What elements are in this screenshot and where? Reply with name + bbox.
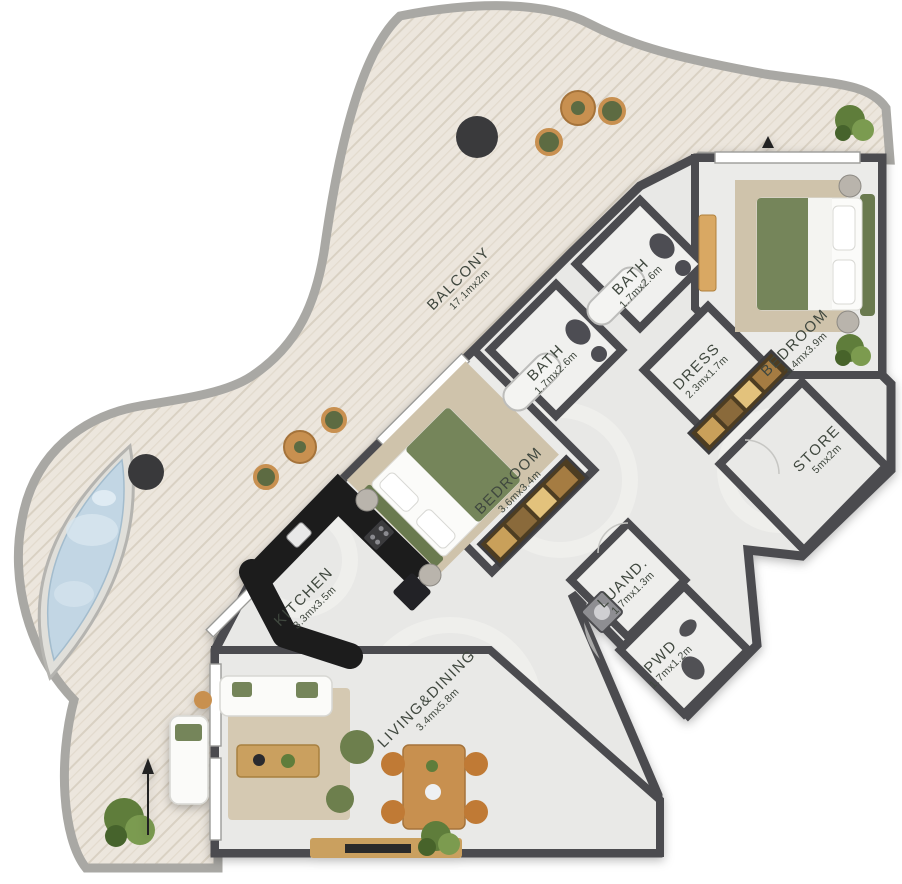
chaise-pillow (175, 724, 202, 741)
window (210, 758, 221, 840)
chair (537, 130, 561, 154)
sofa-pillow (296, 682, 318, 698)
table-plant (426, 760, 438, 772)
pillow (833, 206, 855, 250)
pillow (833, 260, 855, 304)
nightstand (356, 489, 378, 511)
table-centerpiece (571, 101, 585, 115)
dining-chair (381, 800, 405, 824)
table-plant (281, 754, 295, 768)
pouf (340, 730, 374, 764)
nightstand (839, 175, 861, 197)
duvet (757, 198, 813, 310)
nightstand (837, 311, 859, 333)
pouf (326, 785, 354, 813)
window (715, 152, 860, 163)
chair (255, 466, 277, 488)
floor-plan: BALCONY 17.1mx2m BATH 1.7mx2.6m BATH 1.7… (0, 0, 902, 884)
dining-chair (464, 752, 488, 776)
table-centerpiece (294, 441, 306, 453)
nightstand (419, 564, 441, 586)
sink (591, 346, 607, 362)
table-decor (253, 754, 265, 766)
pool-water-highlight (66, 514, 118, 546)
dining-chair (464, 800, 488, 824)
tv (345, 844, 411, 853)
pool-water-highlight (54, 581, 94, 607)
coffee-table (237, 745, 319, 777)
sofa-pillow (232, 682, 252, 697)
bench (699, 215, 716, 291)
basket (194, 691, 212, 709)
sink (675, 260, 691, 276)
pool-water-highlight (92, 490, 116, 506)
chair (600, 99, 624, 123)
planter-round-dark (128, 454, 164, 490)
floor-plan-page: BALCONY 17.1mx2m BATH 1.7mx2.6m BATH 1.7… (0, 0, 902, 884)
dining-chair (381, 752, 405, 776)
fire-table (456, 116, 498, 158)
bed-throw (808, 198, 832, 310)
table-setting (425, 784, 441, 800)
chair (323, 409, 345, 431)
